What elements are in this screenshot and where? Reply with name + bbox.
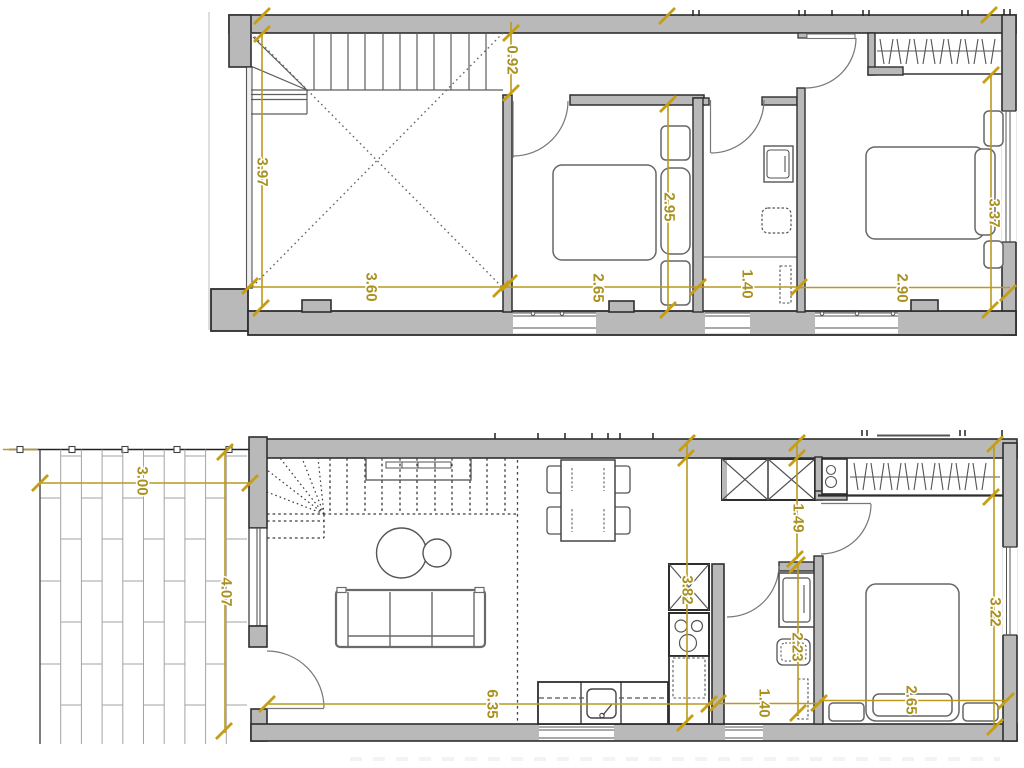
svg-text:3.60: 3.60: [363, 272, 380, 301]
svg-text:3.37: 3.37: [986, 198, 1003, 227]
svg-text:1.40: 1.40: [739, 269, 756, 298]
svg-text:3.22: 3.22: [987, 597, 1004, 626]
svg-text:3.00: 3.00: [134, 466, 151, 495]
svg-text:1.40: 1.40: [756, 688, 773, 717]
svg-text:3.82: 3.82: [679, 575, 696, 604]
svg-text:3.97: 3.97: [254, 157, 271, 186]
svg-text:2.65: 2.65: [590, 273, 607, 302]
svg-text:6.35: 6.35: [484, 689, 501, 718]
svg-text:0.92: 0.92: [504, 45, 521, 74]
svg-text:2.23: 2.23: [789, 632, 806, 661]
svg-text:1.49: 1.49: [790, 503, 807, 532]
svg-text:2.65: 2.65: [903, 685, 920, 714]
svg-text:2.95: 2.95: [661, 192, 678, 221]
svg-text:4.07: 4.07: [218, 577, 235, 606]
svg-text:2.90: 2.90: [894, 273, 911, 302]
